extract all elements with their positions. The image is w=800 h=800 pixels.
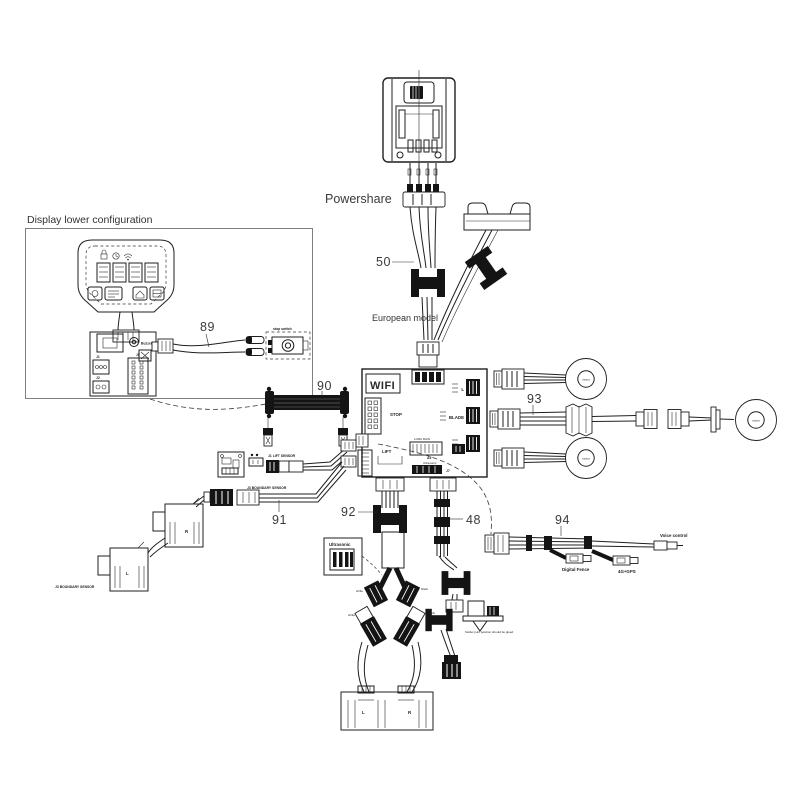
board-ultrasonic-label: Ultrasonic [423, 461, 437, 465]
pcb-j1-label: J1 [96, 355, 100, 359]
blade-motor-pigtail: motor [668, 400, 777, 441]
display-keypad-unit [78, 240, 174, 342]
part-number-48: 48 [466, 513, 481, 527]
svg-text:L: L [461, 387, 464, 392]
block-left-marker: L [362, 710, 365, 715]
ultrasonic-label: Ultrasonic [329, 542, 351, 547]
part-number-91: 91 [272, 513, 287, 527]
motor-label: motor [752, 419, 760, 423]
powershare-label: Powershare [325, 192, 392, 206]
black-wire-label: black [421, 587, 429, 591]
j1-lift-sensor-label: J1 LIFT SENSOR [268, 454, 296, 458]
part-number-92: 92 [341, 505, 356, 519]
solder-joint-note: Solder joint position should be glued [463, 601, 514, 634]
voice-control-label: Voice control [660, 533, 688, 538]
part-number-89: 89 [200, 320, 215, 334]
svg-text:BLADE: BLADE [449, 415, 464, 420]
stop-connector-label: STOP [390, 412, 402, 417]
j3-boundary-sensor-label: J3 BOUNDARY SENSOR [247, 486, 287, 490]
accessory-harness-94: 94 Digital Fence 4G+GPS Voice control [485, 513, 688, 574]
block-right-marker: R [408, 710, 412, 715]
lock-icon [101, 250, 107, 259]
motor-label: motor [582, 378, 590, 382]
board-connector-blade: BLADE [440, 407, 480, 424]
clock-icon [113, 253, 119, 259]
wifi-module-label: WIFI [370, 380, 395, 392]
solder-note-text: Solder joint position should be glued [465, 630, 514, 634]
buzzer-label: Buzzer [141, 342, 153, 346]
stop-switch-label: stop switch [273, 327, 292, 331]
european-model-label: European model [372, 313, 438, 323]
keypad-buttons [88, 287, 164, 300]
pcb-j5-label: J5 [136, 353, 140, 357]
board-connector-left-wheel: L [452, 379, 480, 396]
display-config-box: Display lower configuration [26, 214, 313, 399]
board-left-plugs [341, 440, 356, 467]
part-number-94: 94 [555, 513, 570, 527]
pcb-pin-header [132, 361, 143, 389]
battery-connector [403, 163, 445, 207]
right-wheel-motor-cable: motor [494, 438, 607, 479]
motor-label: motor [582, 457, 590, 461]
display-pcb: Buzzer J1 J2 J5 [90, 332, 156, 396]
power-harness-50: 50 European model [372, 203, 530, 367]
white-wire-label: white [356, 589, 363, 593]
part-number-50: 50 [376, 255, 391, 269]
lift-connector-label: LIFT [382, 449, 392, 454]
main-control-board: WIFI STOP L BL [356, 369, 487, 477]
part-number-90: 90 [317, 379, 332, 393]
blade-motor-cable-93: 93 [490, 392, 657, 436]
wiring-diagram-page: Powershare 50 European model Display low… [0, 0, 800, 800]
display-digits [97, 263, 158, 282]
left-wheel-motor-cable: motor [494, 359, 607, 400]
boundary-sensor-right: R [153, 498, 203, 547]
white-wire-label: white [348, 613, 355, 617]
digital-fence-label: Digital Fence [562, 567, 590, 572]
charge-contact-block: L R [341, 686, 433, 730]
left-boundary-marker: L [126, 571, 129, 576]
wiring-diagram: Powershare 50 European model Display low… [0, 0, 800, 800]
wifi-icon [124, 254, 132, 260]
ultrasonic-mating-connectors: white black [348, 606, 436, 692]
cable-clamp [465, 246, 507, 290]
stop-switch-harness-89: 89 stop switch [152, 320, 310, 359]
part-number-93: 93 [527, 392, 542, 406]
lift-sensor-assembly: J1 LIFT SENSOR [218, 448, 348, 477]
gps-4g-label: 4G+GPS [618, 569, 636, 574]
cable-clamp [411, 269, 445, 297]
ultrasonic-harness-92: 92 white black [341, 478, 429, 607]
right-boundary-marker: R [185, 529, 189, 534]
display-config-title: Display lower configuration [27, 214, 153, 226]
boundary-wire [150, 543, 168, 557]
board-header-j5 [368, 401, 378, 429]
lora-rain-label: LORA RAIN [414, 437, 430, 441]
j7-label: J7 [446, 469, 450, 473]
j3-boundary-sensor-label-bottom: J3 BOUNDARY SENSOR [55, 585, 95, 589]
pcb-j2-label: J2 [96, 376, 100, 380]
display-link-dashed-line [150, 399, 266, 409]
charge-harness-48: 48 [425, 478, 481, 679]
ultrasonic-sensor-box: Ultrasonic [324, 538, 382, 575]
boundary-sensor-left: L J3 BOUNDARY SENSOR [55, 542, 148, 591]
display-cable-90: 90 [263, 379, 349, 446]
